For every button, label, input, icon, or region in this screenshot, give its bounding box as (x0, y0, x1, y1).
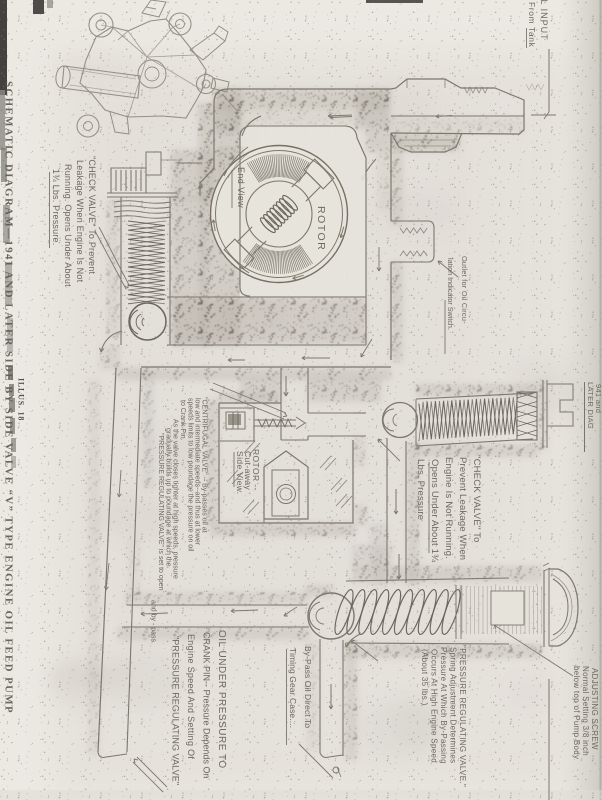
svg-text:Engine Is Not Running.: Engine Is Not Running. (443, 457, 454, 559)
svg-text:and by - pass.: and by - pass. (150, 600, 157, 644)
svg-text:Lbs. Pressure: Lbs. Pressure (415, 459, 426, 520)
svg-text:CRANK PIN-- Pressure Depends O: CRANK PIN-- Pressure Depends On (202, 632, 212, 779)
svg-text:Side View.: Side View. (235, 451, 245, 495)
svg-text:As the valve closes tighter at: As the valve closes tighter at high spee… (172, 419, 179, 579)
svg-text:"CHECK VALVE" To Prevent: "CHECK VALVE" To Prevent (87, 156, 97, 275)
svg-text:lation Indicator Switch.: lation Indicator Switch. (446, 258, 455, 330)
svg-text:SCHEMATIC DIAGRAM—1941 AND LAT: SCHEMATIC DIAGRAM—1941 AND LATER SIDE BY… (3, 81, 15, 714)
svg-text:OIL UNDER PRESSURE TO: OIL UNDER PRESSURE TO (216, 630, 227, 769)
svg-text:ROTOR: ROTOR (315, 206, 327, 251)
svg-text:"PRESSURE REGULATING VALVE" is: "PRESSURE REGULATING VALVE" is set to op… (157, 433, 164, 591)
svg-text:"CHECK VALVE" To: "CHECK VALVE" To (471, 455, 482, 543)
svg-text:"PRESSURE REGULATING VALVE": "PRESSURE REGULATING VALVE" (171, 636, 181, 785)
svg-text:below top of Pump Body: below top of Pump Body (572, 666, 581, 759)
svg-text:Normal Setting 3/8 inch: Normal Setting 3/8 inch (581, 666, 590, 756)
svg-text:By-Pass Oil Direct To: By-Pass Oil Direct To (303, 646, 313, 728)
svg-text:LATER DIAG: LATER DIAG (586, 382, 595, 429)
svg-text:Prevent Leakage When: Prevent Leakage When (457, 457, 468, 560)
svg-text:(About 35 lbs.): (About 35 lbs.) (420, 649, 429, 706)
svg-text:ILLUS. 18: ILLUS. 18 (17, 378, 26, 421)
svg-text:Occurs At High Engine Spee: Occurs At High Engine Speed (430, 649, 439, 763)
svg-text:1¾ Lbs. Pressure.: 1¾ Lbs. Pressure. (51, 169, 61, 245)
svg-text:ADJUSTING SCREW: ADJUSTING SCREW (590, 668, 599, 750)
svg-text:Engine Speed And Setting Of: Engine Speed And Setting Of (186, 634, 196, 759)
svg-text:Opens Under About 1¾: Opens Under About 1¾ (429, 459, 440, 563)
svg-text:End View: End View (236, 167, 246, 208)
svg-text:Outlet for Oil Circu-: Outlet for Oil Circu- (460, 256, 469, 324)
svg-text:"CENTRIFUGAL VALVE" -- By-pass: "CENTRIFUGAL VALVE" -- By-passes oil at (201, 397, 208, 533)
svg-text:Timing Gear Case....: Timing Gear Case.... (288, 648, 298, 728)
svg-text:Pressure At Which By-Passin: Pressure At Which By-Passing (439, 647, 448, 764)
svg-text:speeds limits to low poundage: speeds limits to low poundage the pressu… (187, 398, 194, 552)
svg-text:Running. Opens Under About: Running. Opens Under About (63, 164, 73, 287)
svg-text:to Crank Pin.: to Crank Pin. (179, 400, 186, 441)
svg-text:From Tank: From Tank (527, 2, 537, 48)
svg-text:"PRESSURE REGULATING VALVE.": "PRESSURE REGULATING VALVE." (458, 645, 467, 787)
svg-text:Leakage When Engine Is Not: Leakage When Engine Is Not (75, 160, 85, 283)
svg-text:gradually builds up to poundag: gradually builds up to poundage at which… (165, 428, 172, 567)
svg-text:OIL INPUT: OIL INPUT (539, 0, 549, 41)
svg-text:Spring Adjustment Determines: Spring Adjustment Determines (449, 647, 458, 763)
svg-text:low and intermediate speeds--a: low and intermediate speeds--and thus at… (194, 398, 201, 546)
